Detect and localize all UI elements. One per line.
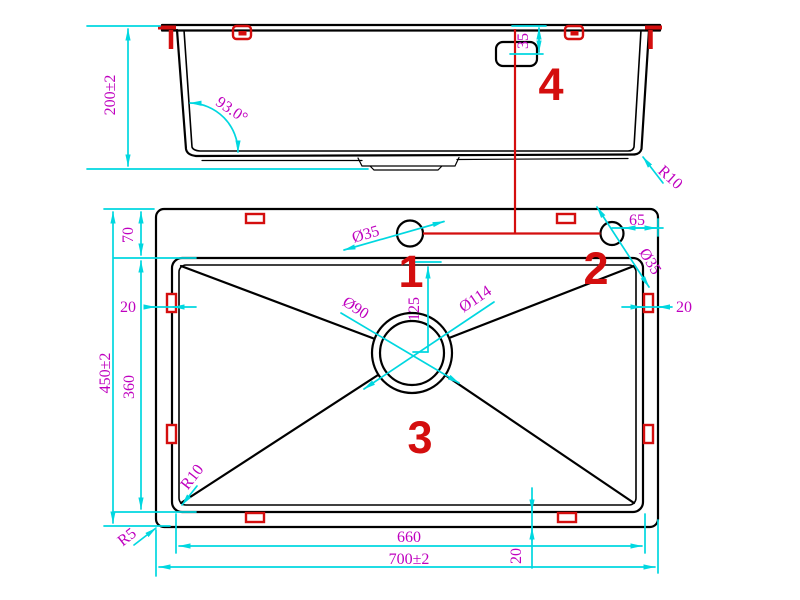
clip-left-lower [167,425,176,443]
rim-clip-right-slot [571,31,579,36]
wall-angle-label: 93.0° [213,94,251,127]
clip-top-right [557,214,575,223]
clip-right-upper [644,294,653,312]
bowl-depth-label: 360 [121,375,138,399]
side-view [158,25,662,170]
side-radius-label: R10 [654,162,685,192]
overall-height-label: 450±2 [97,353,114,394]
clip-bottom-right [558,513,576,522]
depth-dim-label: 200±2 [102,75,119,116]
outer-radius-label: R5 [115,525,140,550]
feature-4-number: 4 [538,59,563,110]
feature-1-number: 1 [398,246,423,297]
clip-top-left [246,214,264,223]
overflow-offset-label: 35 [515,33,532,49]
bowl-width-label: 660 [397,529,421,546]
side-inner-profile [184,30,641,151]
drain-outer-circle [372,313,452,393]
sink-drawing: 200±2 93.0° 35 R10 70 20 450±2 360 R10 R… [0,0,800,600]
edge-right-label: 20 [676,299,692,316]
side-underside-line [202,159,628,161]
edge-left-label: 20 [120,299,136,316]
technical-drawing-page: 200±2 93.0° 35 R10 70 20 450±2 360 R10 R… [0,0,800,600]
hole-to-edge-label: 65 [629,212,645,229]
clip-left-upper [167,294,176,312]
drain-offset-label: 125 [406,297,423,321]
overall-width-label: 700±2 [389,551,430,568]
clip-right-lower [644,425,653,443]
side-outer-profile [177,30,649,156]
rim-to-bowl-label: 70 [120,227,137,243]
edge-bottom-label: 20 [508,548,525,564]
clip-bottom-left [246,513,264,522]
drain-boss [358,158,459,171]
feature-3-number: 3 [407,412,432,463]
rim-clip-left-slot [239,31,247,36]
feature-2-number: 2 [583,243,608,294]
